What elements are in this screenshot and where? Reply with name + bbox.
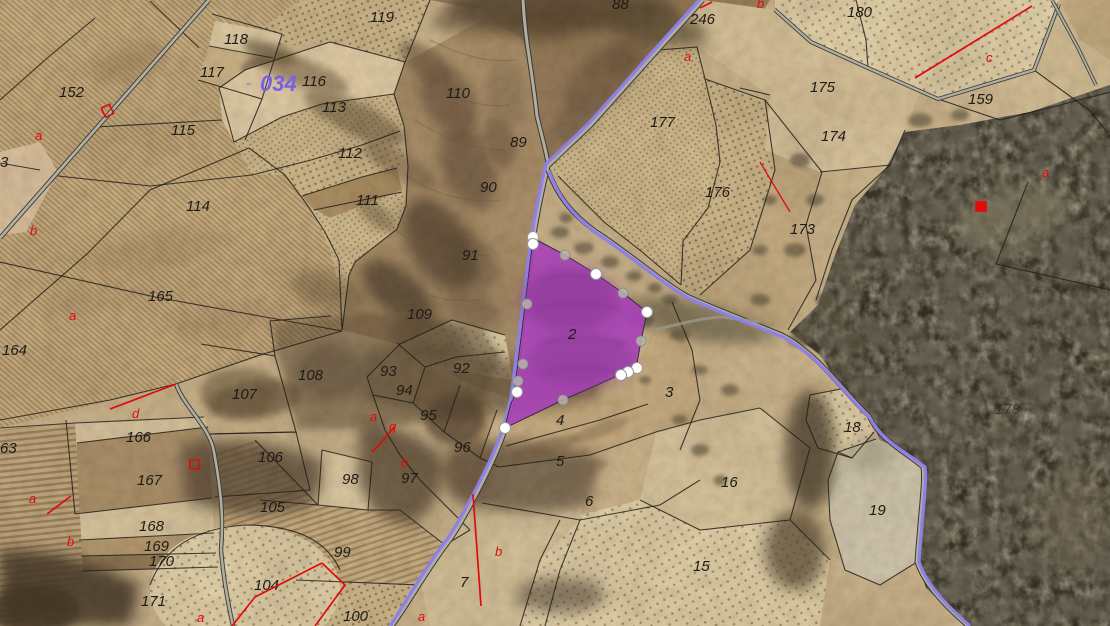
svg-text:111: 111 — [356, 192, 379, 209]
svg-text:6: 6 — [585, 493, 594, 510]
svg-text:113: 113 — [322, 99, 347, 116]
svg-text:97: 97 — [401, 470, 418, 487]
svg-text:95: 95 — [420, 407, 437, 424]
svg-text:a: a — [418, 609, 425, 624]
svg-text:a: a — [370, 409, 377, 424]
svg-text:5: 5 — [556, 453, 565, 470]
svg-text:16: 16 — [721, 474, 738, 491]
svg-text:b: b — [30, 223, 37, 238]
svg-text:107: 107 — [232, 386, 258, 403]
svg-text:98: 98 — [342, 471, 359, 488]
svg-text:110: 110 — [446, 85, 471, 102]
svg-text:159: 159 — [968, 91, 994, 108]
svg-text:19: 19 — [869, 502, 886, 519]
svg-text:90: 90 — [480, 179, 497, 196]
svg-text:171: 171 — [141, 593, 166, 610]
svg-text:91: 91 — [462, 247, 479, 264]
svg-text:-: - — [246, 75, 251, 92]
svg-text:18: 18 — [844, 419, 861, 436]
svg-text:b: b — [757, 0, 764, 11]
svg-text:b: b — [67, 534, 74, 549]
svg-text:a: a — [1042, 165, 1049, 180]
svg-text:117: 117 — [200, 64, 225, 81]
svg-text:165: 165 — [148, 288, 174, 305]
svg-text:96: 96 — [454, 439, 471, 456]
svg-text:177: 177 — [650, 114, 676, 131]
svg-text:a: a — [35, 128, 42, 143]
svg-text:152: 152 — [59, 84, 85, 101]
svg-text:105: 105 — [260, 499, 286, 516]
svg-text:d: d — [132, 406, 140, 421]
svg-text:92: 92 — [453, 360, 470, 377]
svg-text:88: 88 — [612, 0, 629, 13]
svg-text:112: 112 — [338, 145, 363, 162]
svg-text:166: 166 — [126, 429, 152, 446]
svg-text:c: c — [986, 50, 993, 65]
svg-text:7: 7 — [460, 574, 469, 591]
svg-text:174: 174 — [821, 128, 846, 145]
svg-text:176: 176 — [705, 184, 731, 201]
svg-text:b: b — [401, 455, 408, 470]
svg-text:180: 180 — [847, 4, 873, 21]
svg-text:a: a — [69, 308, 76, 323]
svg-text:3: 3 — [0, 154, 9, 171]
svg-text:99: 99 — [334, 544, 351, 561]
svg-text:114: 114 — [186, 198, 210, 215]
svg-text:115: 115 — [171, 122, 196, 139]
svg-text:178: 178 — [995, 401, 1021, 418]
svg-text:63: 63 — [0, 440, 17, 457]
svg-text:15: 15 — [693, 558, 710, 575]
svg-text:246: 246 — [689, 11, 716, 28]
svg-text:164: 164 — [2, 342, 27, 359]
svg-text:89: 89 — [510, 134, 527, 151]
svg-text:175: 175 — [810, 79, 836, 96]
svg-text:a: a — [29, 491, 36, 506]
svg-text:108: 108 — [298, 367, 324, 384]
svg-text:119: 119 — [370, 9, 395, 26]
svg-text:106: 106 — [258, 449, 284, 466]
svg-text:034: 034 — [260, 71, 297, 96]
svg-text:167: 167 — [137, 472, 163, 489]
svg-text:168: 168 — [139, 518, 165, 535]
svg-text:3: 3 — [665, 384, 674, 401]
svg-text:116: 116 — [302, 73, 327, 90]
svg-text:2: 2 — [567, 326, 577, 343]
svg-text:109: 109 — [407, 306, 433, 323]
svg-text:93: 93 — [380, 363, 397, 380]
svg-text:4: 4 — [556, 412, 564, 429]
svg-text:a: a — [197, 610, 204, 625]
svg-text:a: a — [684, 49, 691, 64]
svg-text:173: 173 — [790, 221, 816, 238]
svg-text:100: 100 — [343, 608, 369, 625]
svg-text:94: 94 — [396, 382, 413, 399]
svg-text:b: b — [495, 544, 502, 559]
svg-text:118: 118 — [224, 31, 249, 48]
svg-text:170: 170 — [149, 553, 175, 570]
